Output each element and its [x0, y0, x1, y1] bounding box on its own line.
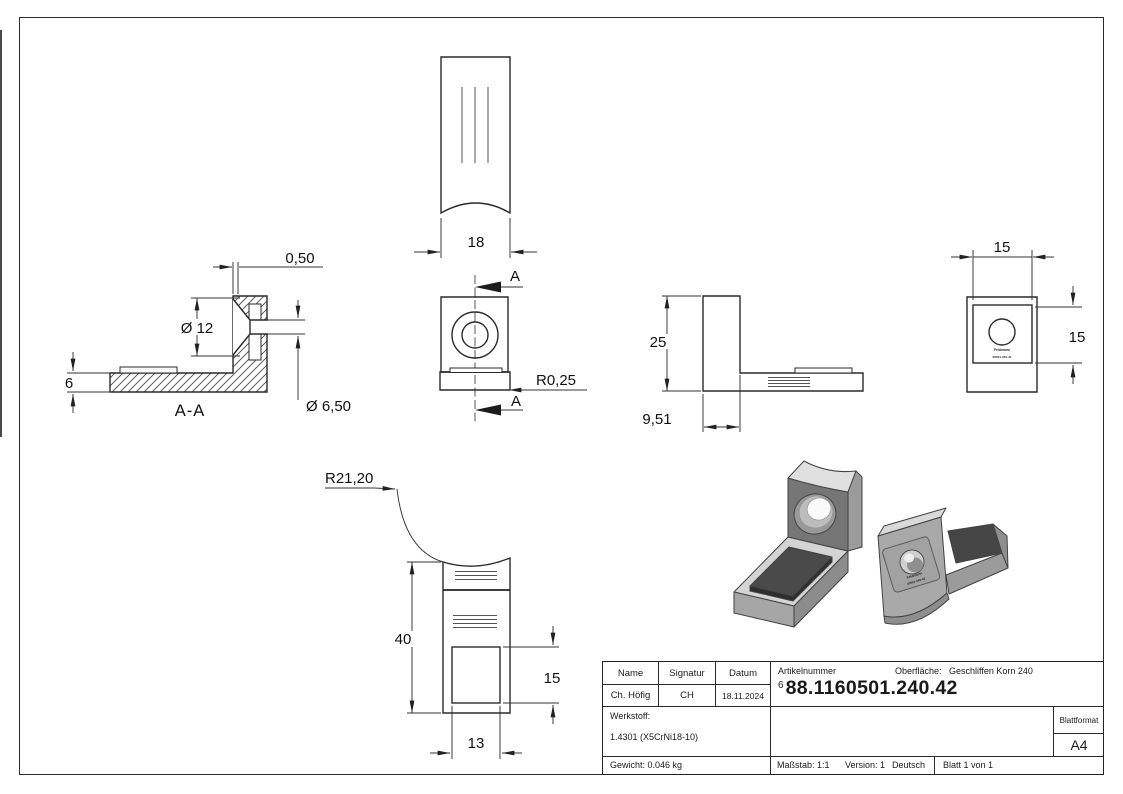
blattformat-value: A4: [1054, 734, 1104, 756]
back-hole-circle: [989, 319, 1015, 345]
view-back: Feldmann 60501-240-42 15 15: [951, 239, 1085, 392]
werkstoff-value: 1.4301 (X5CrNi18-10): [610, 733, 770, 742]
dim-15-pad: 15: [544, 670, 561, 687]
article-number: 688.1160501.240.42: [778, 677, 958, 700]
saddle-radius-arc: [397, 489, 443, 562]
side-pad: [795, 368, 852, 373]
sticker-text-line2: 60501-240-42: [993, 355, 1012, 359]
engineering-drawing-sheet: 0,50 Ø 12 6 Ø 6,50 A-A 18: [0, 0, 1123, 794]
view-front: A A R0,25: [440, 268, 587, 422]
section-label: A-A: [175, 402, 206, 420]
dim-951: 9,51: [642, 411, 671, 428]
bottom-pad-outline: [452, 647, 500, 703]
header-signatur: Signatur: [659, 662, 716, 685]
front-pad-strip: [450, 368, 502, 373]
value-datum: 18.11.2024: [716, 685, 771, 707]
view-side: 25 9,51: [642, 296, 863, 432]
surface-finish: Oberfläche: Geschliffen Korn 240: [895, 666, 1033, 676]
language: Deutsch: [892, 757, 925, 774]
werkstoff-label: Werkstoff:: [610, 712, 770, 721]
view-top: 18: [414, 57, 537, 258]
value-name: Ch. Höfig: [603, 685, 659, 707]
side-outline: [703, 296, 863, 391]
scale-cell: Maßstab: 1:1 Version: 1 Deutsch: [771, 757, 935, 774]
sheet-count-cell: Blatt 1 von 1: [935, 757, 1104, 774]
dim-18: 18: [468, 234, 485, 251]
dim-13: 13: [468, 735, 485, 752]
section-arrow-top: [475, 282, 501, 293]
dim-15-width: 15: [994, 239, 1011, 256]
empty-cell: [771, 707, 1054, 757]
section-base-pad: [120, 367, 177, 373]
bottom-grind-marks-2: [453, 616, 497, 628]
massstab: Maßstab: 1:1: [777, 757, 830, 774]
side-grind-marks: [768, 378, 810, 387]
dim-d650: Ø 6,50: [306, 398, 351, 415]
article-number-prefix: 6: [778, 680, 784, 691]
value-signatur: CH: [659, 685, 716, 707]
view-section-a-a: 0,50 Ø 12 6 Ø 6,50 A-A: [65, 250, 351, 420]
header-datum: Datum: [716, 662, 771, 685]
blattformat-label: Blattformat: [1054, 707, 1104, 734]
dim-d12: Ø 12: [181, 320, 214, 337]
dim-40: 40: [395, 631, 412, 648]
dim-25: 25: [650, 334, 667, 351]
dim-6: 6: [65, 375, 73, 392]
sticker-text-line1: Feldmann: [994, 348, 1010, 352]
top-grind-marks: [462, 87, 488, 163]
sheet-format-cell: Blattformat A4: [1054, 707, 1104, 757]
article-number-cell: Artikelnummer Oberfläche: Geschliffen Ko…: [771, 662, 1104, 707]
material-cell: Werkstoff: 1.4301 (X5CrNi18-10): [603, 707, 771, 757]
title-block: Name Signatur Datum Ch. Höfig CH 18.11.2…: [602, 661, 1104, 775]
section-arrow-bottom: [475, 405, 501, 416]
oberflaeche-label: Oberfläche:: [895, 666, 942, 676]
weight-cell: Gewicht: 0.046 kg: [603, 757, 771, 774]
bottom-grind-marks-1: [455, 572, 497, 580]
version: Version: 1: [845, 757, 885, 774]
dim-r2120: R21,20: [325, 470, 373, 487]
iso-view-front: [734, 461, 862, 627]
section-body-hatched: [110, 296, 267, 392]
header-name: Name: [603, 662, 659, 685]
section-mark-a-bottom: A: [511, 393, 521, 410]
dim-0-50: 0,50: [285, 250, 314, 267]
section-mark-a-top: A: [510, 268, 520, 285]
dim-r025: R0,25: [536, 372, 576, 389]
artikelnummer-label: Artikelnummer: [778, 666, 836, 676]
oberflaeche-value: Geschliffen Korn 240: [949, 666, 1033, 676]
iso2-hole-highlight: [904, 554, 914, 563]
dim-15-height: 15: [1069, 329, 1086, 346]
article-number-value: 88.1160501.240.42: [786, 677, 958, 699]
iso-view-back: Feldmann 60501-240-42: [878, 508, 1008, 624]
view-bottom: R21,20 40 15 13: [325, 470, 560, 759]
